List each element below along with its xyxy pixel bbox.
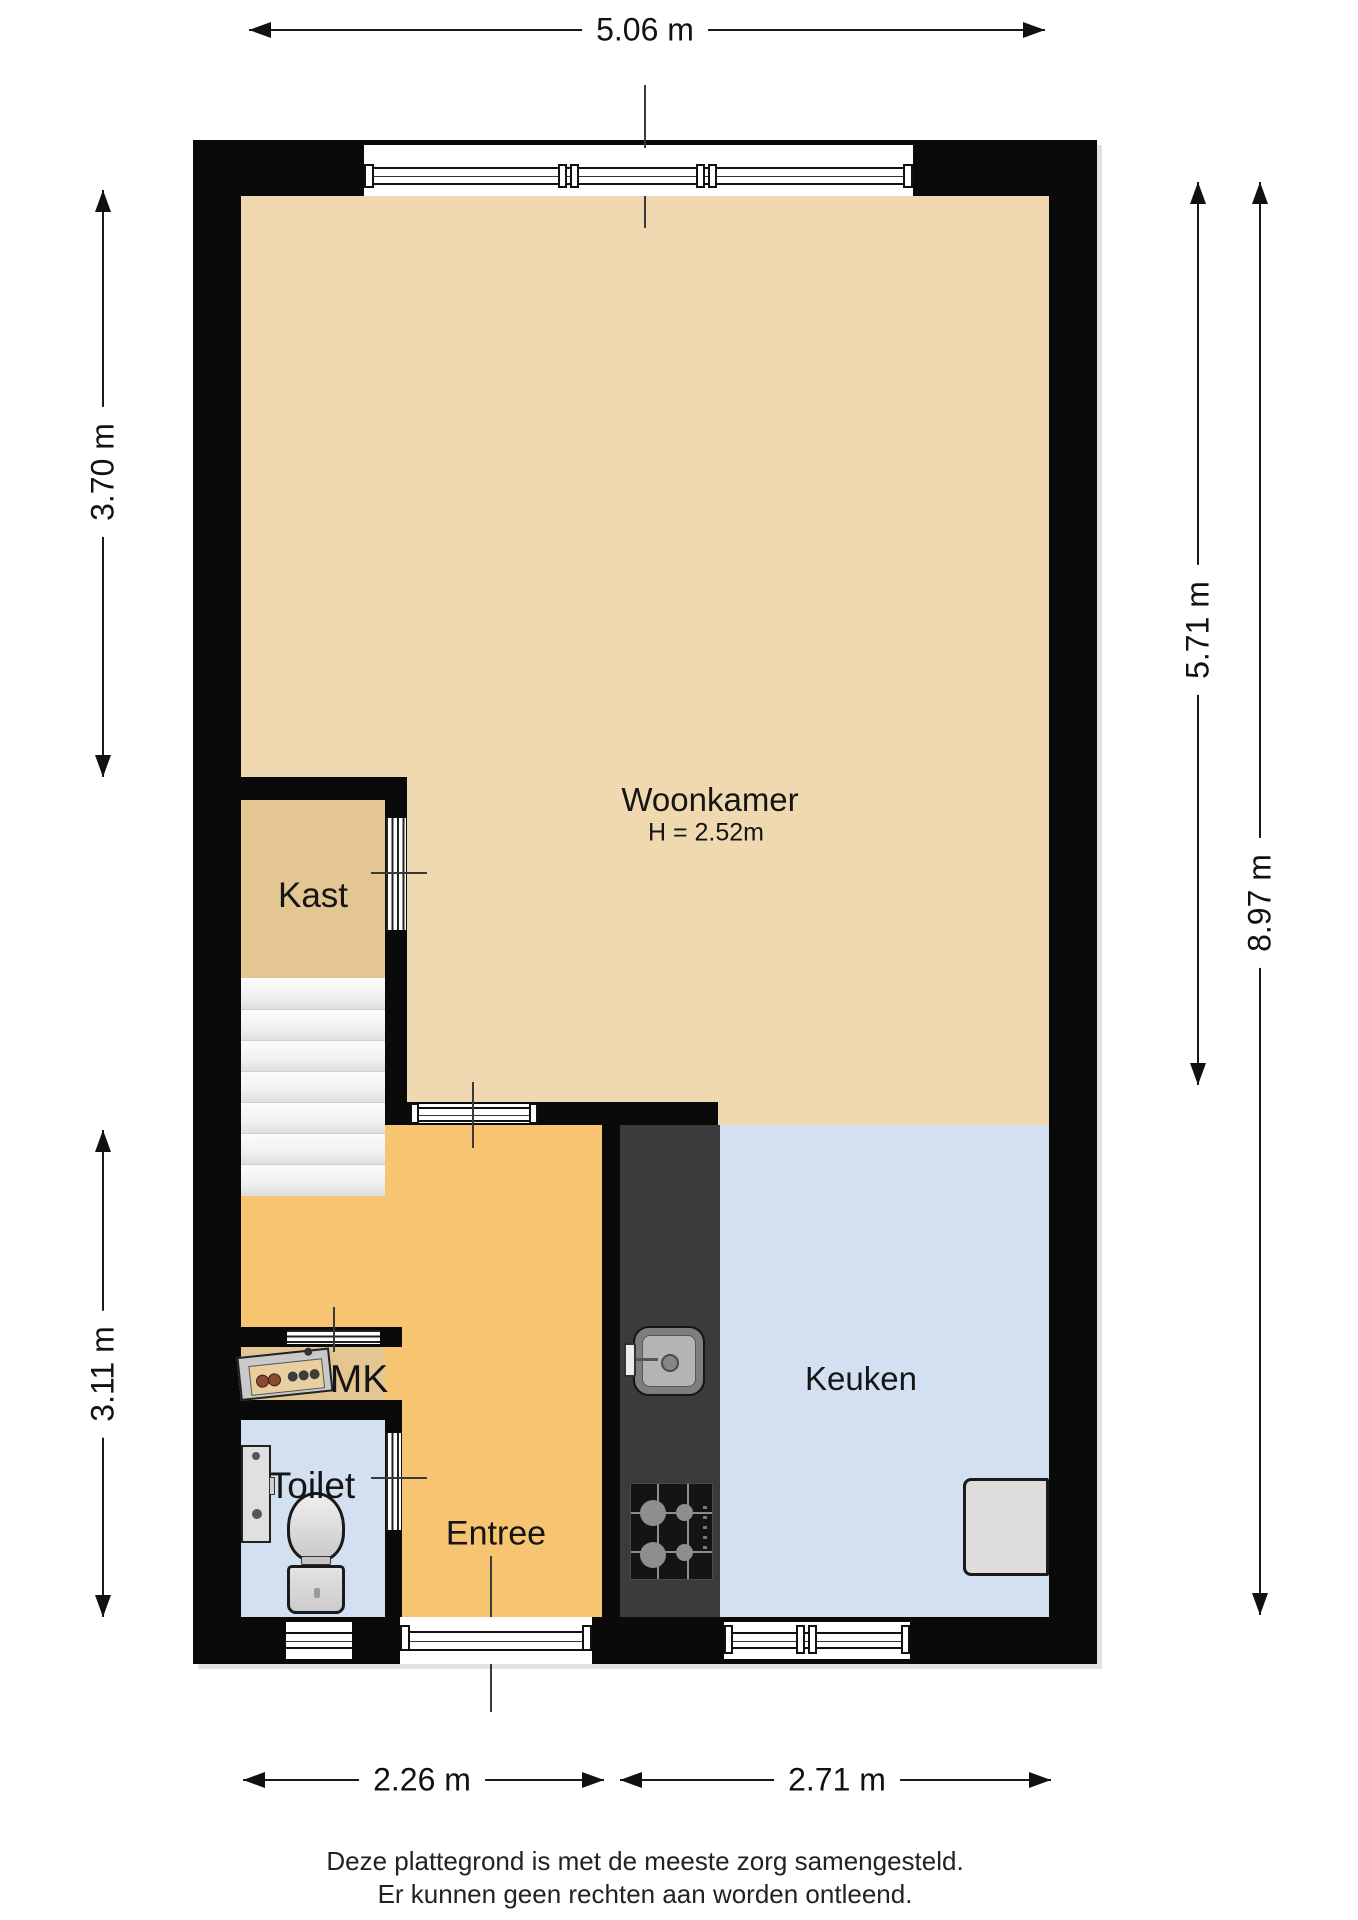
toilet-window-glazing [286,1632,352,1649]
kitchen-window-glazing [724,1632,910,1649]
interior-window [410,1104,538,1123]
floorplan-canvas: Woonkamer H = 2.52m Kast Keuken Entree T… [0,0,1358,1920]
kitchen-window-cap [724,1625,733,1654]
label-mk: MK [330,1358,389,1402]
dim-top-label: 5.06 m [582,10,708,51]
top-window-centerline [644,196,646,228]
label-toilet: Toilet [269,1465,355,1507]
dim-left-upper-label: 3.70 m [83,407,124,537]
wall-left [193,140,241,1664]
kitchen-window-cap [901,1625,910,1654]
dim-arrowhead [95,1130,111,1152]
toilet-seat-hinge [301,1556,331,1565]
stair-tread [241,1133,385,1165]
kitchen-faucet [624,1343,636,1377]
front-door-centerline [490,1556,492,1617]
stair-tread [241,1102,385,1134]
front-door-cap [400,1625,410,1651]
dim-arrowhead [1190,182,1206,204]
interior-window-cap [410,1103,419,1124]
dim-arrowhead [620,1772,642,1788]
stair-tread [241,1009,385,1041]
label-woonkamer-height: H = 2.52m [648,819,764,848]
toilet-tank [287,1565,345,1614]
kitchen-faucet-spout [636,1358,658,1361]
dim-bottom-right-label: 2.71 m [774,1760,900,1801]
toilet-window [286,1622,352,1659]
dim-arrowhead [249,22,271,38]
top-window-divider [708,164,717,188]
staircase [241,978,385,1195]
wall-mk-bottom [241,1400,402,1420]
stove [630,1483,713,1580]
interior-window-centerline [472,1082,474,1148]
top-window-cap [903,164,913,188]
wall-kast-top [241,777,407,800]
top-window-cap [364,164,374,188]
top-window-glazing [364,167,913,185]
mk-centerline [333,1307,335,1352]
top-window-divider [696,164,705,188]
disclaimer-line-1: Deze plattegrond is met de meeste zorg s… [0,1846,1290,1877]
kast-door [386,818,406,930]
front-door-cap [582,1625,592,1651]
dim-arrowhead [243,1772,265,1788]
dim-arrowhead [582,1772,604,1788]
interior-window-cap [529,1103,538,1124]
kitchen-window-divider [808,1625,817,1654]
disclaimer-line-2: Er kunnen geen rechten aan worden ontlee… [0,1879,1290,1910]
interior-window-glazing [410,1107,538,1122]
wall-right [1049,140,1097,1664]
label-kast: Kast [278,876,348,916]
dim-arrowhead [1252,1593,1268,1615]
label-woonkamer: Woonkamer [621,781,798,819]
kitchen-sink [633,1326,705,1396]
toilet-basin [241,1445,271,1543]
dim-arrowhead [1023,22,1045,38]
dim-arrowhead [1252,182,1268,204]
dim-arrowhead [1190,1063,1206,1085]
toilet-door-centerline [371,1477,427,1479]
kitchen-window [724,1622,910,1659]
dim-arrowhead [1029,1772,1051,1788]
dim-arrowhead [95,1595,111,1617]
dim-right-total-label: 8.97 m [1240,838,1281,968]
front-door-glazing [400,1631,592,1651]
top-window-divider [558,164,567,188]
kast-door-centerline [371,872,427,874]
dim-arrowhead [95,190,111,212]
top-window-divider [570,164,579,188]
stair-tread [241,1071,385,1103]
front-door [400,1617,592,1664]
front-door-centerline [490,1664,492,1712]
stair-tread [241,1040,385,1072]
top-window [364,145,913,196]
label-entree: Entree [446,1515,546,1554]
toilet-door [386,1433,401,1530]
kitchen-window-divider [796,1625,805,1654]
dim-left-lower-label: 3.11 m [83,1310,124,1437]
top-window-centerline [644,85,646,148]
dim-bottom-left-label: 2.26 m [359,1760,485,1801]
stair-tread [241,978,385,1009]
refrigerator [963,1478,1049,1576]
label-keuken: Keuken [805,1360,917,1398]
stair-tread [241,1164,385,1196]
wall-entree-keuken [602,1125,620,1617]
dim-right-inner-label: 5.71 m [1178,565,1219,695]
dim-arrowhead [95,755,111,777]
